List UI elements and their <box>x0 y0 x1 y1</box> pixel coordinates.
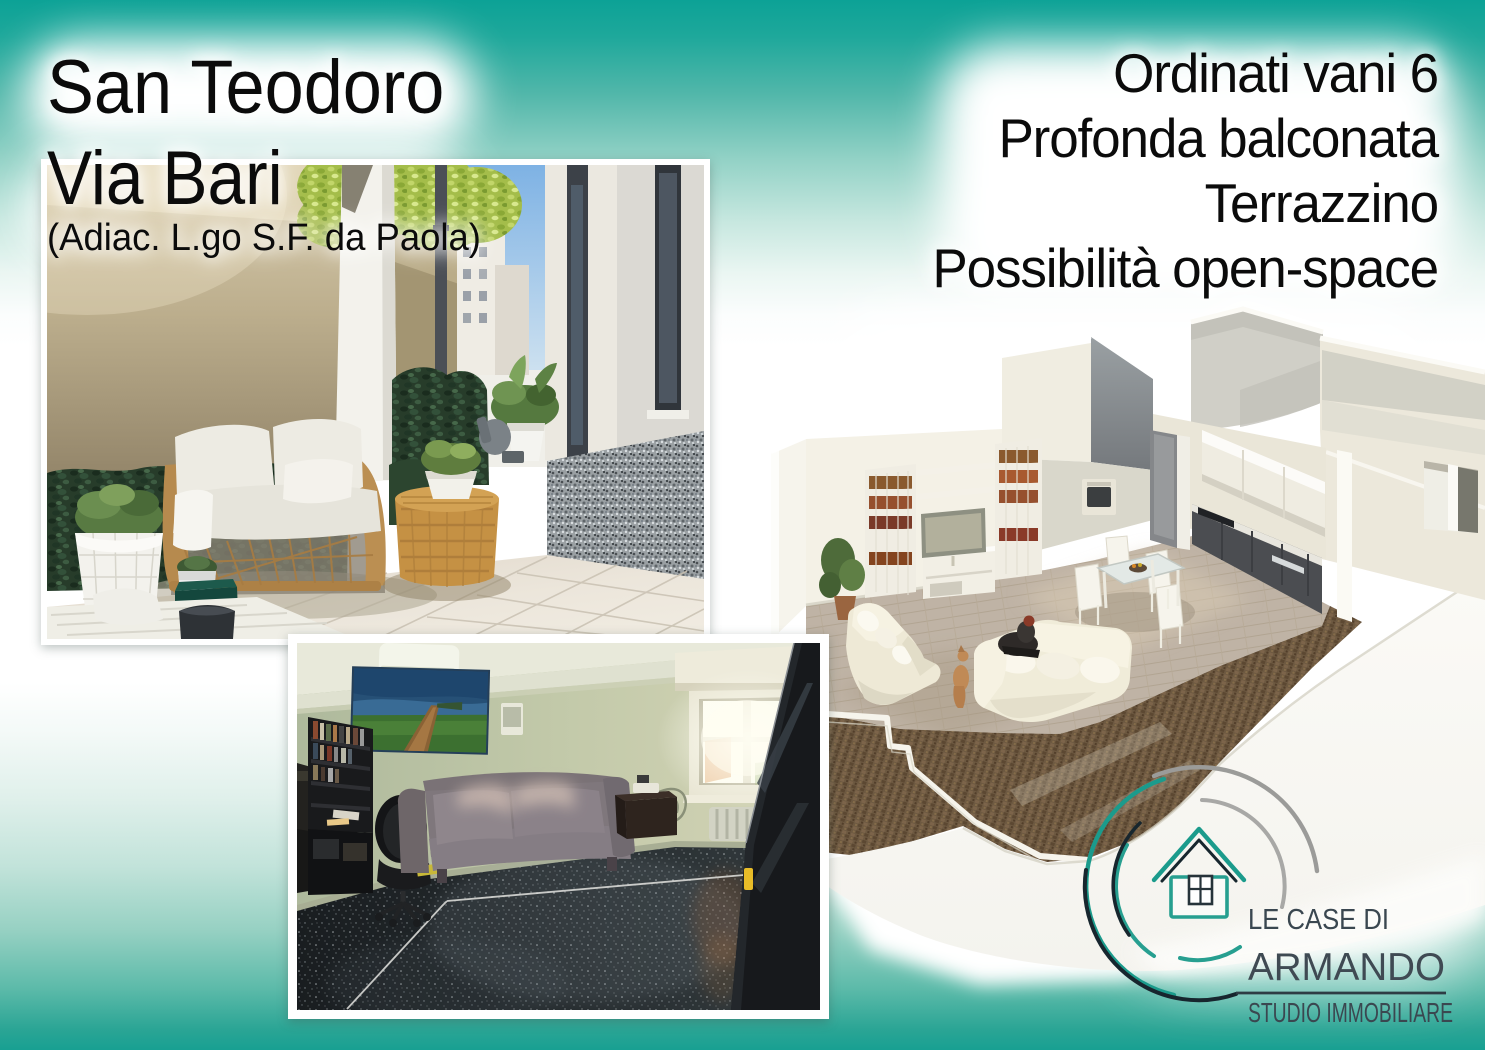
svg-text:ARMANDO: ARMANDO <box>1248 946 1445 989</box>
svg-text:LE CASE DI: LE CASE DI <box>1248 904 1389 936</box>
svg-text:STUDIO IMMOBILIARE: STUDIO IMMOBILIARE <box>1248 997 1453 1028</box>
